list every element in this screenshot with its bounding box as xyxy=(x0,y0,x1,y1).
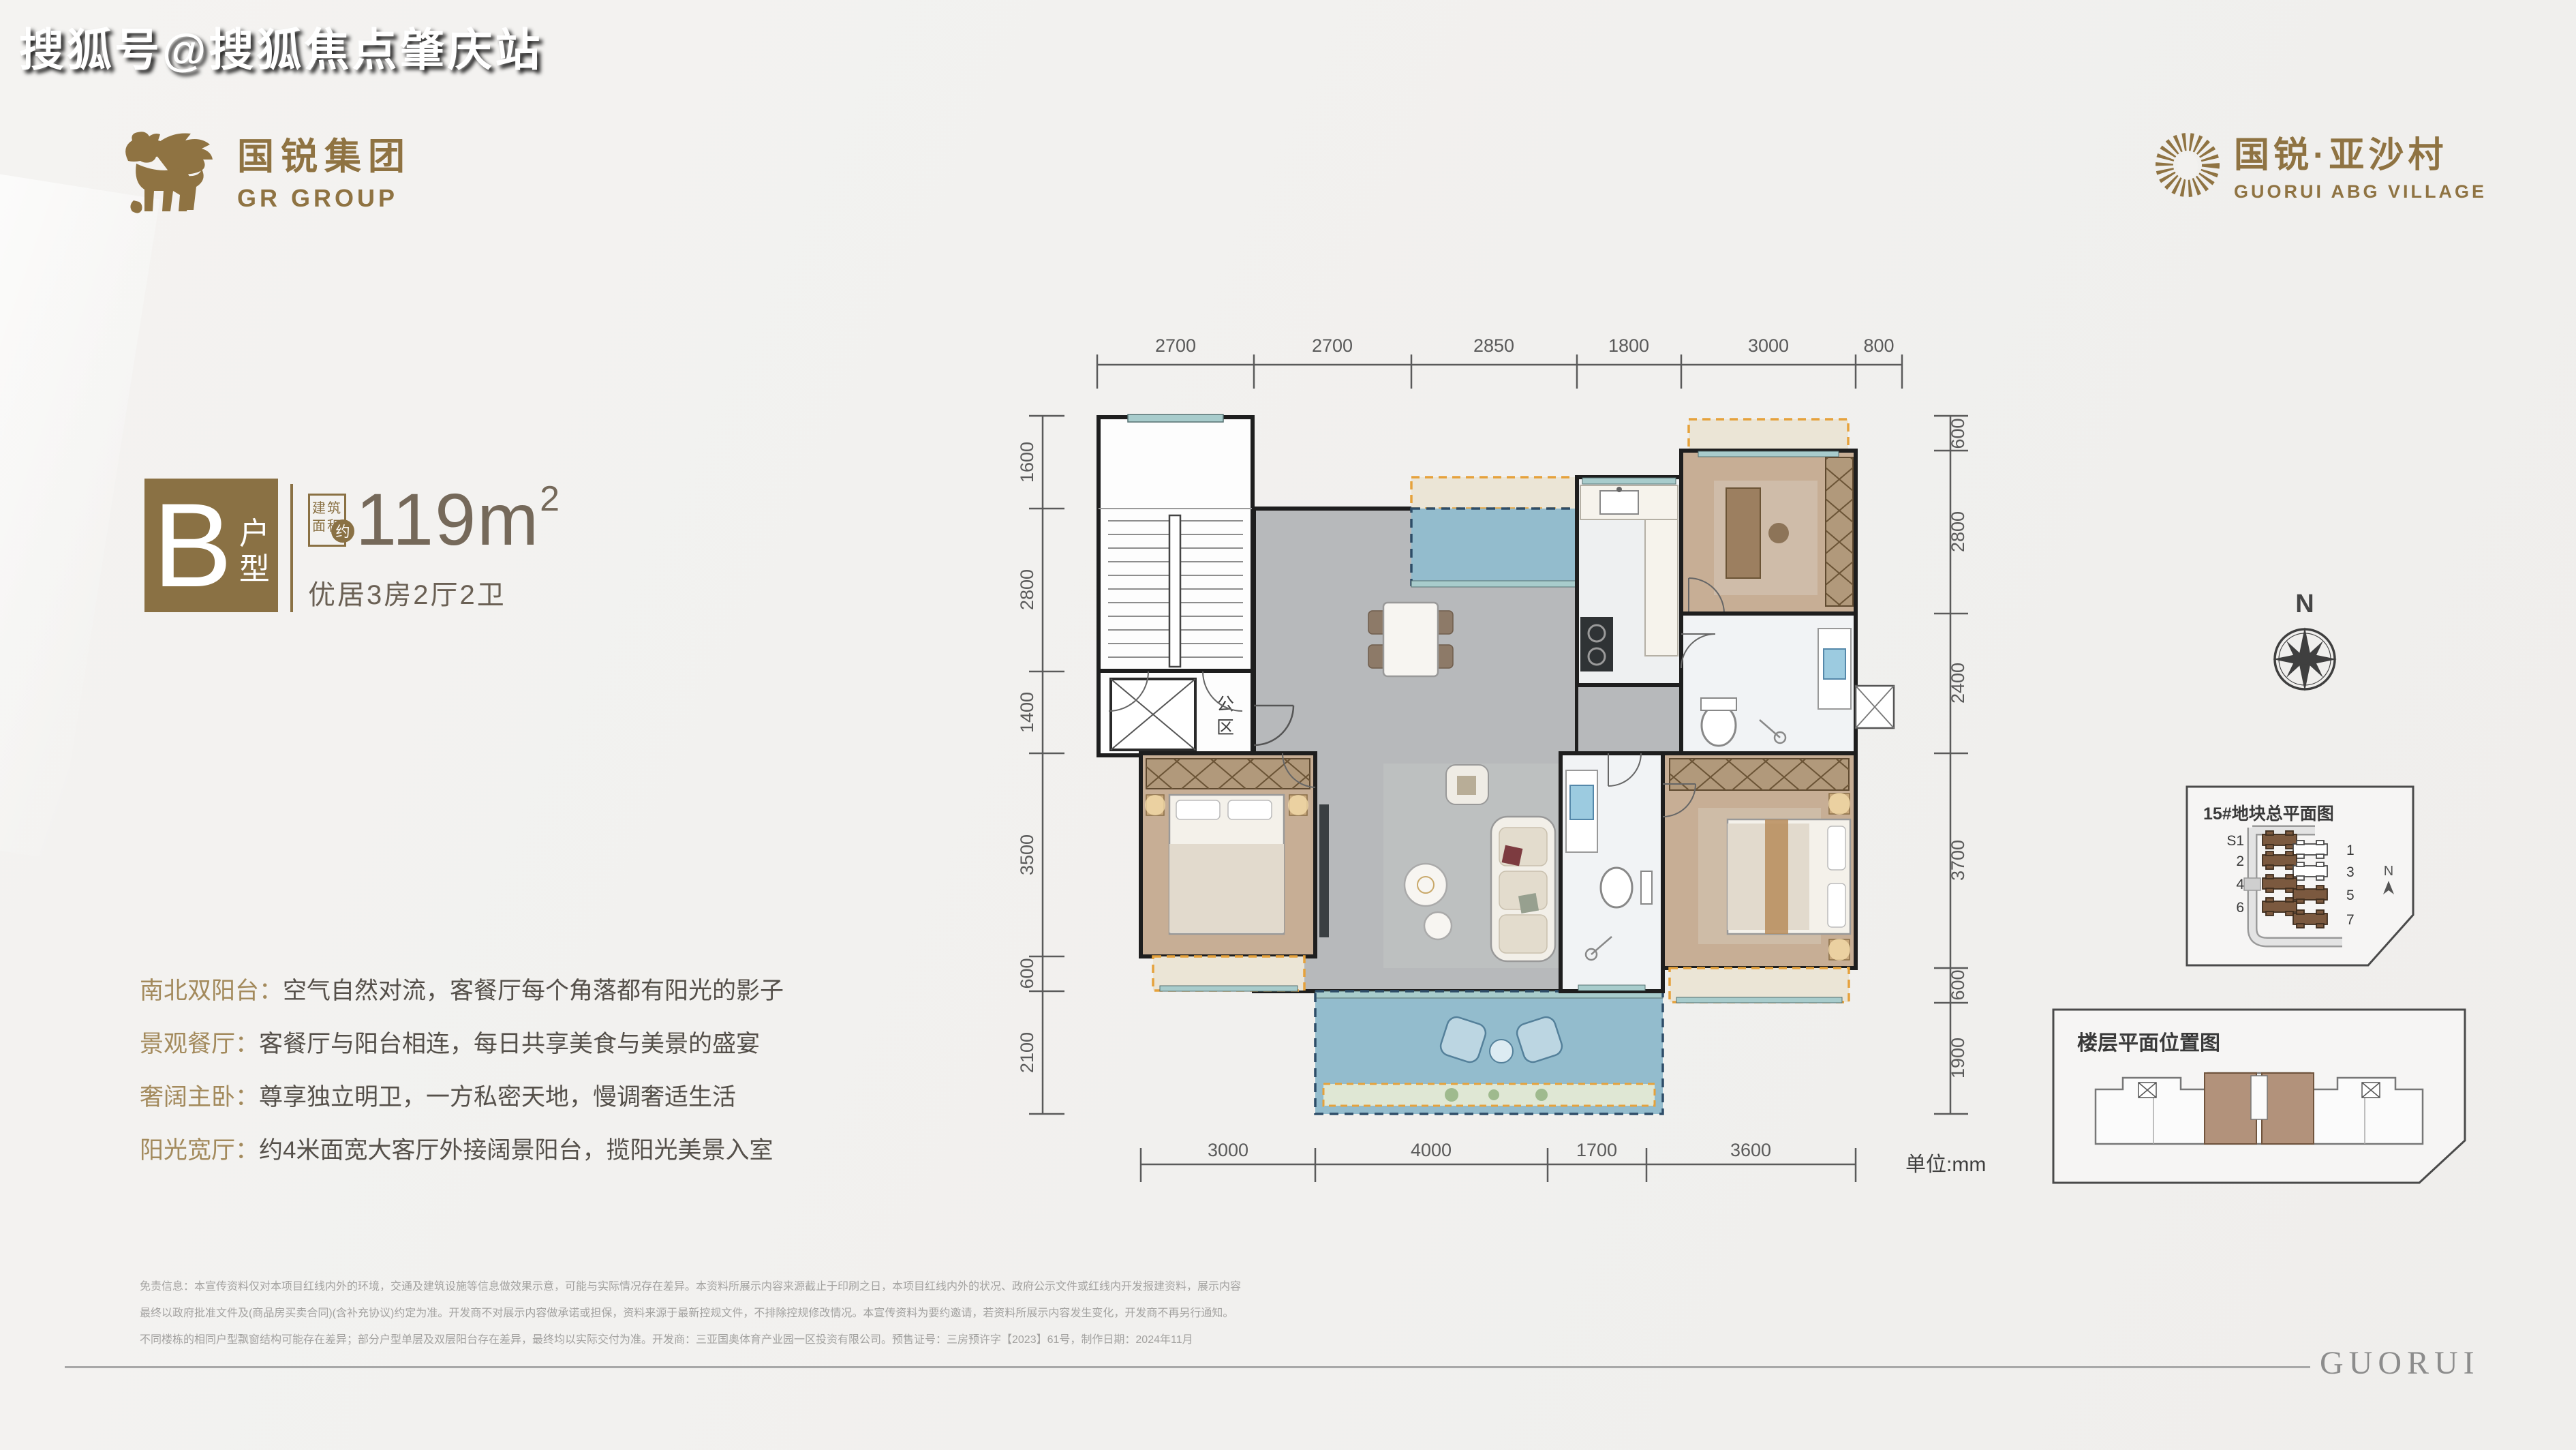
disclaimer-line: 不同楼栋的相同户型飘窗结构可能存在差异；部分户型单层及双层阳台存在差异，最终均以… xyxy=(140,1327,1241,1353)
sunburst-icon xyxy=(2152,127,2223,202)
svg-text:2850: 2850 xyxy=(1473,335,1514,356)
feature-label: 南北双阳台： xyxy=(140,978,283,1004)
svg-text:N: N xyxy=(2384,864,2393,879)
winged-lion-icon xyxy=(116,121,218,217)
developer-name-cn: 国锐集团 xyxy=(237,126,412,180)
project-name-cn: 国锐·亚沙村 xyxy=(2234,126,2487,177)
svg-text:2: 2 xyxy=(2236,854,2244,869)
disclaimer-line: 免责信息：本宣传资料仅对本项目红线内外的环境，交通及建筑设施等信息做效果示意，可… xyxy=(140,1273,1241,1300)
desk xyxy=(1726,488,1760,578)
site-buildings xyxy=(2263,831,2327,928)
toilet xyxy=(1601,868,1632,907)
stair-core: 公 区 xyxy=(1099,414,1253,755)
compass-north-label: N xyxy=(2295,590,2314,618)
feature-item: 景观餐厅：客餐厅与阳台相连，每日共享美食与美景的盛宴 xyxy=(140,1029,784,1059)
feature-text: 尊享独立明卫，一方私密天地，慢调奢适生活 xyxy=(259,1084,736,1111)
north-bay-window xyxy=(1411,477,1577,509)
svg-text:S1: S1 xyxy=(2226,833,2244,849)
svg-text:4: 4 xyxy=(2236,877,2244,892)
chair xyxy=(1768,523,1789,543)
feature-text: 客餐厅与阳台相连，每日共享美食与美景的盛宴 xyxy=(259,1031,760,1057)
footer-divider xyxy=(65,1366,2310,1368)
disclaimer: 免责信息：本宣传资料仅对本项目红线内外的环境，交通及建筑设施等信息做效果示意，可… xyxy=(140,1273,1241,1353)
svg-text:3700: 3700 xyxy=(1948,840,1968,881)
svg-text:7: 7 xyxy=(2346,912,2355,928)
master-bedroom xyxy=(1663,753,1856,1003)
svg-text:5: 5 xyxy=(2346,888,2355,903)
svg-text:600: 600 xyxy=(1948,418,1968,449)
feature-list: 南北双阳台：空气自然对流，客餐厅每个角落都有阳光的影子 景观餐厅：客餐厅与阳台相… xyxy=(140,976,784,1189)
background-light-streak xyxy=(0,163,160,859)
svg-text:800: 800 xyxy=(1863,335,1894,356)
svg-text:3000: 3000 xyxy=(1748,335,1789,356)
feature-item: 奢阔主卧：尊享独立明卫，一方私密天地，慢调奢适生活 xyxy=(140,1083,784,1113)
feature-text: 约4米面宽大客厅外接阔景阳台，揽阳光美景入室 xyxy=(259,1137,773,1164)
highlighted-unit xyxy=(2205,1073,2256,1144)
svg-text:1800: 1800 xyxy=(1608,335,1649,356)
svg-text:1: 1 xyxy=(2346,843,2355,858)
svg-text:3000: 3000 xyxy=(1208,1140,1248,1160)
basin xyxy=(1824,649,1845,679)
unit-layout-text: 优居3房2厅2卫 xyxy=(308,573,506,612)
svg-text:1400: 1400 xyxy=(1017,692,1037,733)
svg-text:600: 600 xyxy=(1948,969,1968,1000)
svg-text:1900: 1900 xyxy=(1948,1038,1968,1078)
project-name-en: GUORUI ABG VILLAGE xyxy=(2234,181,2487,202)
unit-type-char-2: 型 xyxy=(239,552,270,587)
area-label-line1: 建筑 xyxy=(310,500,344,517)
south-balcony xyxy=(1315,991,1663,1114)
site-plan-title: 15#地块总平面图 xyxy=(2203,804,2334,824)
feature-label: 阳光宽厅： xyxy=(140,1137,259,1164)
ac-platform xyxy=(1856,686,1894,728)
feature-item: 阳光宽厅：约4米面宽大客厅外接阔景阳台，揽阳光美景入室 xyxy=(140,1136,784,1166)
svg-text:2100: 2100 xyxy=(1017,1032,1037,1073)
kitchen-sink xyxy=(1600,491,1638,514)
svg-text:2700: 2700 xyxy=(1155,335,1196,356)
unit-letter-badge: B 户 型 xyxy=(144,479,278,612)
kitchen xyxy=(1577,477,1681,685)
compass-rose-icon xyxy=(2273,627,2337,691)
site-plan: 15#地块总平面图 S1 2 4 6 1 3 5 7 N xyxy=(2184,784,2416,968)
approx-badge: 约 xyxy=(331,519,354,543)
headline-divider xyxy=(290,484,293,612)
bathroom-shared xyxy=(1681,614,1856,753)
area-value: 119m 2 xyxy=(356,483,559,556)
svg-text:3600: 3600 xyxy=(1730,1140,1771,1160)
floor-plate xyxy=(2096,1073,2423,1144)
area-superscript: 2 xyxy=(540,481,559,517)
tv-panel xyxy=(1319,804,1329,937)
coffee-table-small xyxy=(1424,912,1452,939)
unit-note: 单位:mm xyxy=(1905,1153,1986,1176)
project-logo: 国锐·亚沙村 GUORUI ABG VILLAGE xyxy=(2152,126,2487,202)
developer-name-en: GR GROUP xyxy=(237,184,412,213)
bedroom-south xyxy=(1141,753,1315,991)
watermark: 搜狐号@搜狐焦点肇庆站 xyxy=(19,14,542,79)
public-area-label: 区 xyxy=(1216,717,1234,738)
balcony-table xyxy=(1490,1040,1513,1063)
basin xyxy=(1570,785,1593,819)
svg-text:2400: 2400 xyxy=(1948,663,1968,704)
dim-chain-left: 1600 2800 1400 3500 600 2100 xyxy=(1017,416,1064,1114)
north-balcony xyxy=(1411,509,1577,585)
svg-text:2800: 2800 xyxy=(1948,511,1968,552)
coffee-table xyxy=(1405,864,1447,906)
svg-text:2700: 2700 xyxy=(1312,335,1353,356)
elevator-icon xyxy=(1111,679,1195,750)
footer-logo-text: GUORUI xyxy=(2320,1344,2480,1382)
bedroom-north xyxy=(1681,419,1856,614)
svg-text:600: 600 xyxy=(1017,958,1037,988)
unit-letter: B xyxy=(153,486,232,605)
unit-rooms xyxy=(1141,419,1894,1114)
poster-page: 搜狐号@搜狐焦点肇庆站 国锐集团 GR GROUP 国锐·亚沙村 GUORUI … xyxy=(0,0,2576,1450)
feature-text: 空气自然对流，客餐厅每个角落都有阳光的影子 xyxy=(283,978,784,1004)
highlighted-unit xyxy=(2262,1073,2314,1144)
floor-diagram-title: 楼层平面位置图 xyxy=(2077,1031,2220,1055)
svg-text:6: 6 xyxy=(2236,900,2244,916)
hallway-floor xyxy=(1577,685,1681,753)
master-bathroom xyxy=(1561,753,1663,991)
developer-logo: 国锐集团 GR GROUP xyxy=(116,121,412,217)
dim-chain-right: 600 2800 2400 3700 600 1900 xyxy=(1934,416,1968,1114)
feature-label: 奢阔主卧： xyxy=(140,1084,259,1111)
feature-item: 南北双阳台：空气自然对流，客餐厅每个角落都有阳光的影子 xyxy=(140,976,784,1006)
dim-chain-top: 2700 2700 2850 1800 3000 800 xyxy=(1097,335,1902,389)
svg-text:4000: 4000 xyxy=(1411,1140,1452,1160)
compass: N xyxy=(2264,588,2346,704)
svg-text:1600: 1600 xyxy=(1017,442,1037,483)
feature-label: 景观餐厅： xyxy=(140,1031,259,1057)
floor-plan: 2700 2700 2850 1800 3000 800 1600 2800 1… xyxy=(975,307,2010,1261)
area-number: 119m xyxy=(356,483,540,556)
dim-chain-bottom: 3000 4000 1700 3600 单位:mm xyxy=(1141,1140,1986,1182)
svg-text:1700: 1700 xyxy=(1576,1140,1617,1160)
svg-text:3: 3 xyxy=(2346,864,2355,880)
unit-type-char-1: 户 xyxy=(239,516,270,552)
svg-text:3500: 3500 xyxy=(1017,834,1037,875)
disclaimer-line: 最终以政府批准文件及(商品房买卖合同)(含补充协议)约定为准。开发商不对展示内容… xyxy=(140,1300,1241,1327)
floor-position-diagram: 楼层平面位置图 xyxy=(2051,1008,2467,1185)
svg-text:2800: 2800 xyxy=(1017,569,1037,610)
